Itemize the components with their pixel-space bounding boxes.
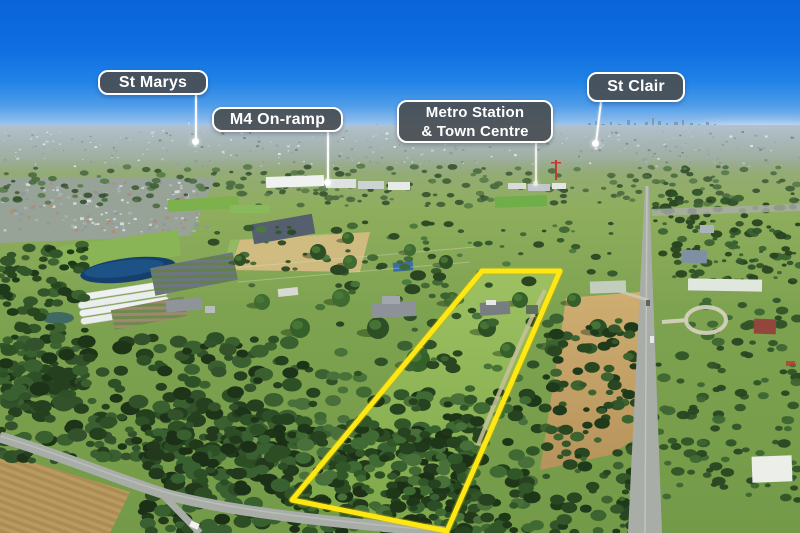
callout-metro-station: Metro Station & Town Centre — [397, 100, 553, 143]
parcel-house-detail — [486, 300, 496, 305]
house-wing — [382, 296, 400, 304]
location-dot-metro — [533, 181, 538, 186]
callout-label-line1: Metro Station — [426, 103, 524, 122]
house-roof — [700, 225, 714, 233]
leader-line-metro — [535, 143, 537, 183]
callout-label: M4 On-ramp — [230, 111, 325, 129]
callout-label: St Marys — [119, 74, 187, 92]
house-roof — [682, 250, 707, 264]
white-shed — [752, 455, 793, 482]
parcel-shed — [526, 305, 538, 314]
long-building — [688, 278, 762, 291]
red-shed — [754, 319, 777, 335]
location-dot-st-clair — [592, 140, 599, 147]
location-dot-st-marys — [192, 138, 199, 145]
callout-m4-on-ramp: M4 On-ramp — [212, 107, 343, 132]
leader-line-m4 — [327, 132, 329, 183]
callout-label: St Clair — [607, 78, 665, 96]
callout-label-line2: & Town Centre — [421, 122, 528, 141]
callout-st-clair: St Clair — [587, 72, 685, 102]
aerial-property-photo: St Marys M4 On-ramp Metro Station & Town… — [0, 0, 800, 533]
shed — [205, 306, 215, 313]
location-dot-m4 — [324, 179, 331, 186]
callout-st-marys: St Marys — [98, 70, 208, 95]
leader-line-st-marys — [195, 95, 197, 141]
neighbor-house — [590, 280, 626, 293]
